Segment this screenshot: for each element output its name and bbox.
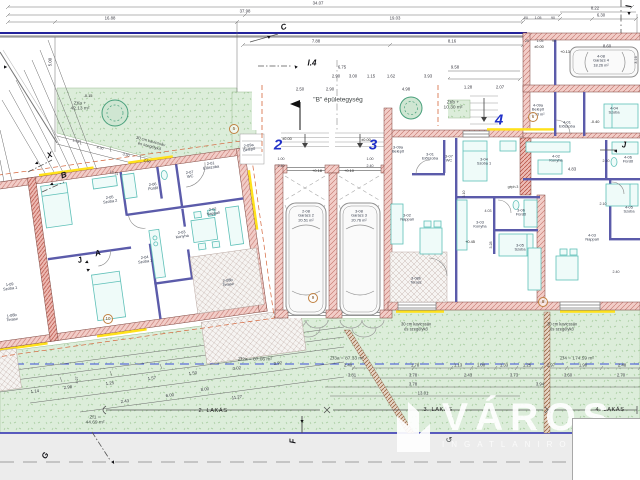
floor-plan-page: 34.0737.9816.8819.038.226.30201.05907.88…: [0, 0, 640, 480]
road: [0, 433, 640, 480]
legend-cutout-box: [572, 418, 640, 480]
floor-plan-canvas: [0, 0, 640, 480]
